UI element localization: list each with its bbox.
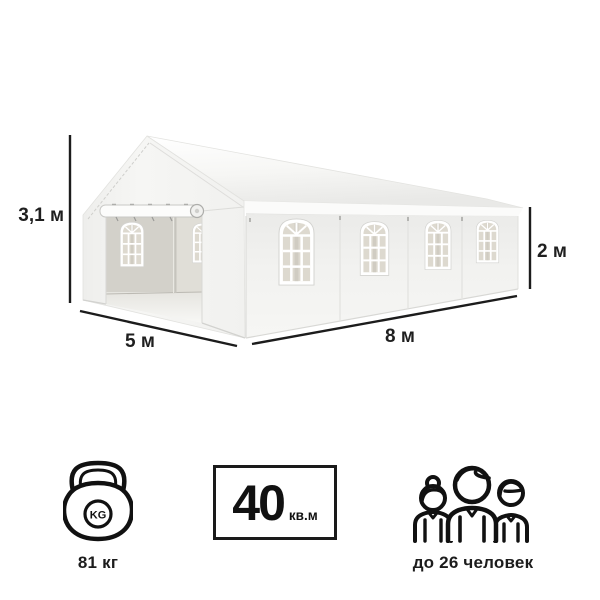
dimension-label-wall-height: 2 м [537,241,567,262]
tent-illustration: 3,1 м 5 м 8 м 2 м [0,0,600,450]
area-badge: 40 кв.м [213,465,337,540]
dimension-label-height: 3,1 м [18,205,64,226]
dimension-label-side-length: 8 м [385,326,415,347]
kettlebell-icon: KG [63,459,133,543]
capacity-label: до 26 человек [401,553,545,573]
kg-icon-text: KG [90,510,107,522]
dimension-label-front-width: 5 м [125,331,155,352]
tent-window [120,222,144,266]
area-inner: 40 кв.м [232,478,317,528]
people-icon [411,461,535,543]
area-value: 40 [232,478,284,528]
tent-window [360,222,389,276]
spec-weight: KG 81 кг [38,459,158,573]
product-image: 3,1 м 5 м 8 м 2 м KG 81 кг 40 кв.м [0,0,600,600]
tent-window [425,220,451,269]
tent-window [476,220,499,263]
area-unit: кв.м [289,508,318,523]
tent-window [279,219,314,285]
spec-capacity: до 26 человек [401,461,545,573]
weight-label: 81 кг [38,553,158,573]
